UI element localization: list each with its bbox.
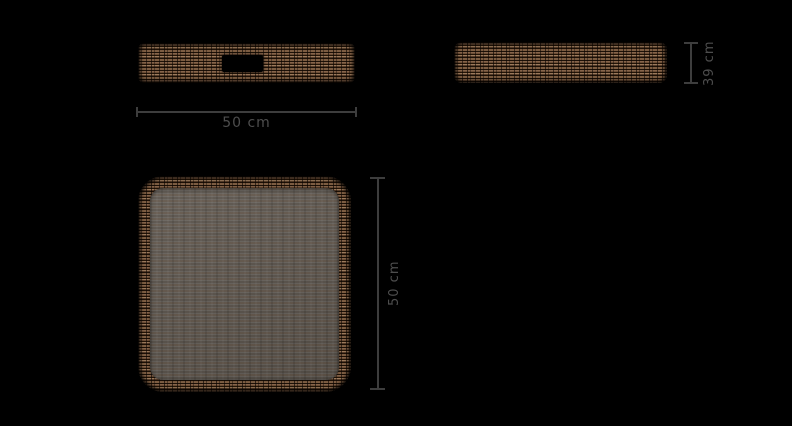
tray-top-view	[138, 176, 351, 392]
handle-cutout	[222, 55, 263, 72]
height-dimension-line	[684, 42, 698, 84]
width-dimension-label: 50 cm	[136, 115, 357, 131]
product-dimension-diagram: 50 cm 39 cm 50 cm	[0, 0, 792, 426]
tray-side-view	[454, 42, 667, 83]
depth-dimension-line	[370, 177, 385, 390]
depth-dimension-label: 50 cm	[387, 177, 402, 390]
height-dimension-label: 39 cm	[702, 40, 717, 86]
tray-surface	[150, 188, 339, 380]
tray-front-view	[138, 43, 355, 83]
